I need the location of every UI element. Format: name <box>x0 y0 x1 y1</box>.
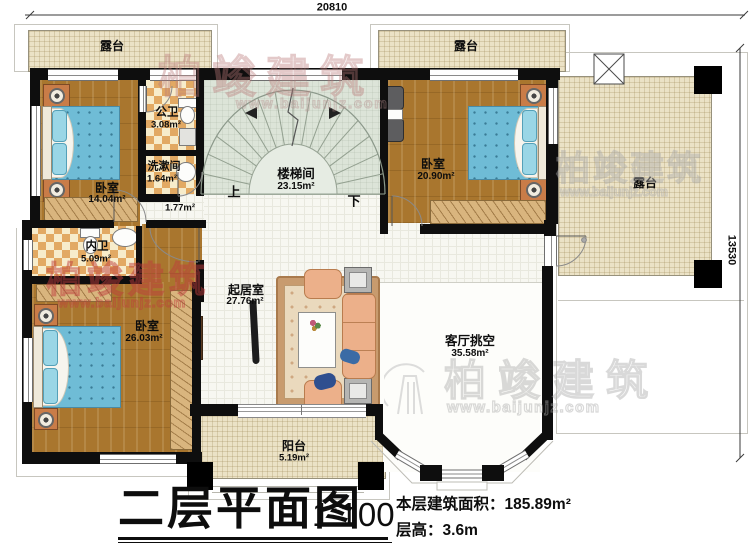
room-label-balcony: 阳台 <box>282 440 306 452</box>
room-label-living: 起居室 <box>228 284 264 296</box>
room-area-balcony: 5.19m² <box>279 453 309 463</box>
watermark-brand: 柏竣建筑 <box>444 360 660 402</box>
room-area-living: 27.76m² <box>226 297 263 307</box>
room-label-terrace-top-left: 露台 <box>100 40 124 52</box>
watermark-brand: 柏竣建筑 <box>556 152 704 186</box>
watermark-logo-icon <box>384 362 436 420</box>
room-area-bedroom-tr: 20.90m² <box>417 172 454 182</box>
floor-plan: 露台 露台 露台 卧室 14.04m² 公卫 3.08m² 洗漱间 1.64m²… <box>0 0 750 548</box>
title-underline-thin <box>118 542 392 543</box>
title-underline-thick <box>118 537 388 540</box>
room-area-washroom: 1.64m² <box>147 174 177 184</box>
dimension-right: 13530 <box>726 232 737 269</box>
room-label-bedroom-tr: 卧室 <box>421 158 445 170</box>
watermark-url: www.baijunjz.com <box>560 186 668 199</box>
room-label-ensuite: 内卫 <box>86 241 109 253</box>
watermark-brand: 柏竣建筑 <box>158 56 374 100</box>
room-label-stairwell: 楼梯间 <box>277 168 315 181</box>
floor-area-value: 185.89m² <box>505 496 571 513</box>
room-label-void: 客厅挑空 <box>445 335 495 348</box>
watermark-brand: 柏竣建筑 <box>46 262 210 298</box>
corridor-area: 1.77m² <box>165 203 195 213</box>
floor-height-value: 3.6m <box>443 522 478 539</box>
floor-area-label: 本层建筑面积： <box>396 496 505 513</box>
stair-down-label: 下 <box>347 195 360 208</box>
floor-area-line: 本层建筑面积：185.89m² <box>396 492 571 514</box>
floor-height-label: 层高： <box>396 522 443 539</box>
room-label-public-bath: 公卫 <box>156 107 179 119</box>
room-label-bedroom-bl: 卧室 <box>135 320 159 332</box>
room-area-bedroom-tl: 14.04m² <box>88 195 125 205</box>
floor-height-line: 层高：3.6m <box>396 518 478 540</box>
room-label-terrace-top-right: 露台 <box>454 40 478 52</box>
column <box>694 260 722 288</box>
title-block: 二层平面图 1:100 本层建筑面积：185.89m² 层高：3.6m <box>0 484 750 548</box>
stair-up-label: 上 <box>227 186 240 199</box>
room-area-stairwell: 23.15m² <box>277 182 314 192</box>
watermark-url: www.baijunjz.com <box>58 296 186 309</box>
room-area-public-bath: 3.08m² <box>151 120 181 130</box>
dimension-top: 20810 <box>314 3 351 14</box>
watermark-url: www.baijunjz.com <box>447 400 600 415</box>
room-label-washroom: 洗漱间 <box>148 162 181 173</box>
title-scale: 1:100 <box>312 496 395 534</box>
watermark-url: www.baijunjz.com <box>236 96 389 110</box>
column <box>694 66 722 94</box>
room-label-bedroom-tl: 卧室 <box>95 182 119 194</box>
room-area-bedroom-bl: 26.03m² <box>125 334 162 344</box>
